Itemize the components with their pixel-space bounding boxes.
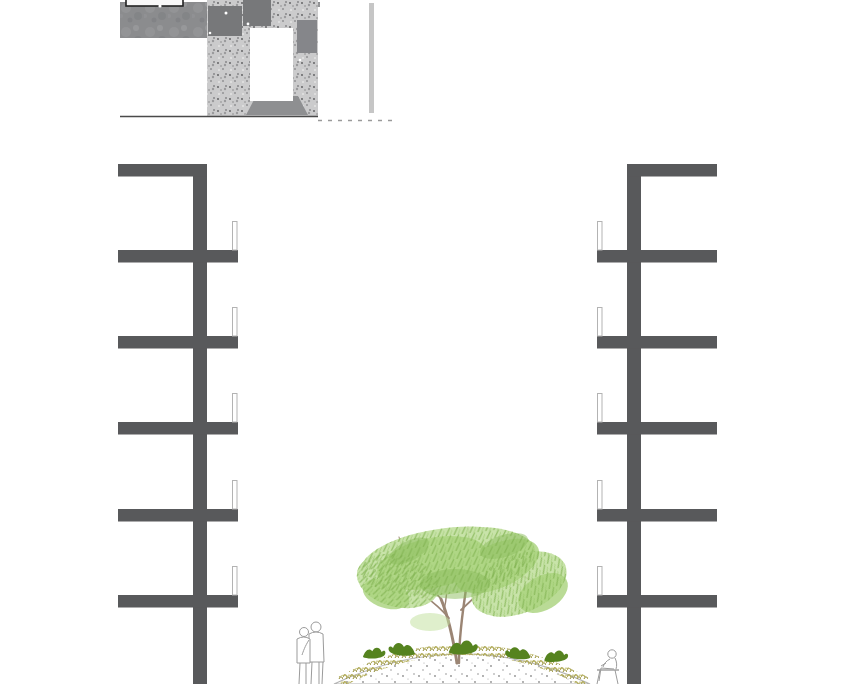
left-building-roof-slab [118, 164, 207, 177]
right-building-roof-slab [628, 164, 717, 177]
plan-legend-box [126, 0, 183, 6]
plan-dark-patch [208, 6, 242, 36]
section-drawing-page: Architectural courtyard section drawing … [0, 0, 845, 684]
plan-mid-patch [297, 20, 317, 53]
section-drawing: Architectural courtyard section drawing … [0, 0, 845, 684]
plan-dark-patch [243, 0, 271, 26]
plan-edge-strip [369, 3, 374, 113]
plan-building-footprint [250, 28, 293, 101]
plan-building-footprint [122, 38, 207, 117]
plan-building-footprint [318, 7, 368, 115]
site-plan [120, 0, 392, 121]
